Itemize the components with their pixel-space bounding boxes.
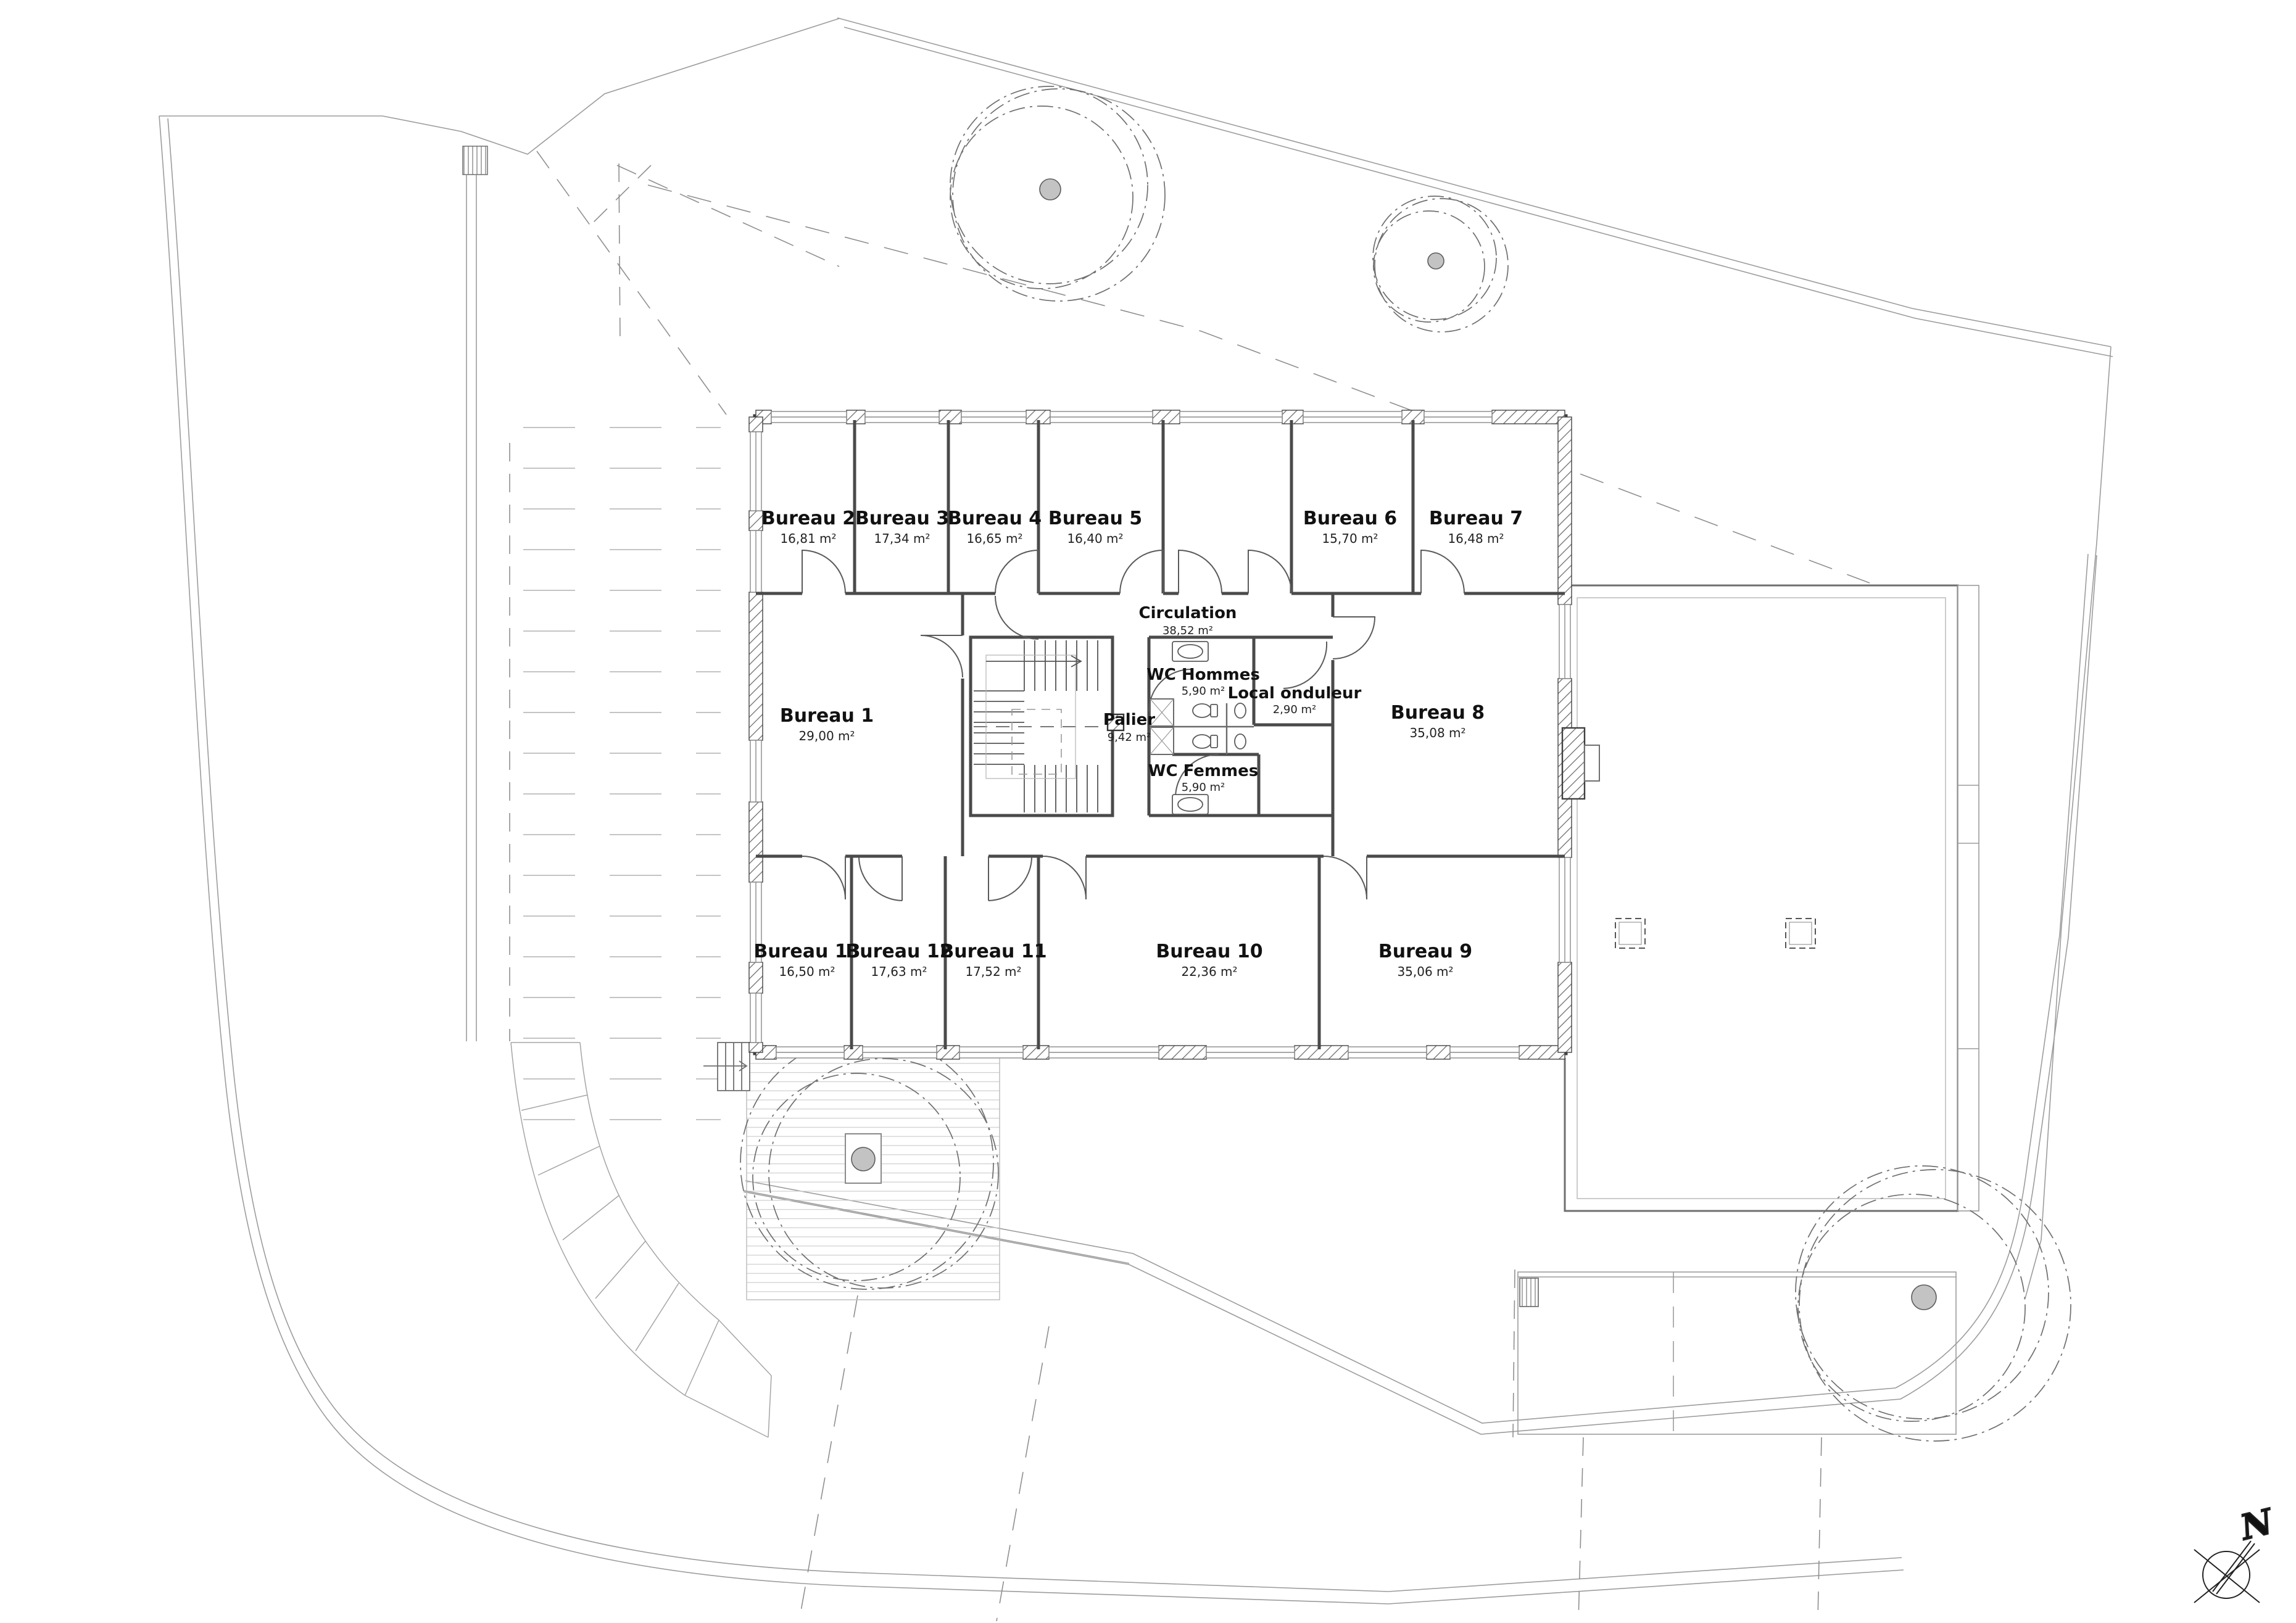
room-area: 16,40 m² [1067,531,1123,546]
tree-trunk [1912,1285,1936,1310]
room-area: 15,70 m² [1322,531,1378,546]
room-area: 5,90 m² [1182,781,1225,794]
building: Bureau 2 16,81 m² Bureau 3 17,34 m² Bure… [749,410,1599,1059]
room-label: Bureau 8 [1391,702,1485,724]
room-area: 29,00 m² [798,729,855,743]
room-label: Bureau 10 [1156,941,1262,962]
north-compass: N [2194,1501,2278,1603]
room-area: 9,42 m² [1108,731,1151,744]
room-label: Bureau 13 [753,941,860,962]
room-area: 16,65 m² [966,531,1022,546]
sink-hommes [1172,642,1208,661]
room-label: WC Femmes [1148,762,1258,780]
room-area: 16,50 m² [779,964,835,979]
room-label: Bureau 5 [1048,508,1142,529]
roof-terrace [1565,585,1979,1211]
room-area: 17,34 m² [874,531,930,546]
room-area: 17,63 m² [871,964,927,979]
room-area: 35,08 m² [1409,725,1465,740]
room-area: 22,36 m² [1181,964,1237,979]
room-area: 17,52 m² [965,964,1021,979]
windows-top [771,411,1492,423]
room-area: 16,48 m² [1448,531,1504,546]
garden-footpath [463,146,487,1041]
sink-femmes [1172,795,1208,814]
windows-bottom [776,1047,1519,1058]
floor-plan-canvas: Bureau 2 16,81 m² Bureau 3 17,34 m² Bure… [0,0,2296,1623]
wood-deck [744,1044,1698,1300]
room-label: Bureau 3 [855,508,949,529]
room-label: Bureau 6 [1303,508,1397,529]
room-area: 16,81 m² [780,531,836,546]
garden-terraces [494,405,721,1152]
terrace-edge-strip [1958,585,1979,1211]
tree-trunk [1428,253,1444,269]
room-label: Bureau 9 [1378,941,1472,962]
tree-trunk [852,1147,875,1171]
room-area: 35,06 m² [1397,964,1453,979]
room-area: 5,90 m² [1182,685,1225,698]
room-label: Palier [1103,711,1155,729]
room-label: Bureau 11 [940,941,1046,962]
north-label: N [2236,1501,2278,1548]
room-label: Bureau 7 [1429,508,1523,529]
room-label: Bureau 4 [948,508,1042,529]
room-label: Bureau 2 [761,508,855,529]
room-label: Circulation [1139,604,1237,622]
tree-trunk [1040,179,1061,200]
room-label: WC Hommes [1146,666,1260,684]
lower-patio [1518,1272,1956,1434]
room-area: 38,52 m² [1163,624,1213,637]
room-label: Local onduleur [1228,684,1362,703]
room-area: 2,90 m² [1273,703,1317,716]
room-label: Bureau 1 [780,705,874,727]
room-label: Bureau 12 [845,941,952,962]
